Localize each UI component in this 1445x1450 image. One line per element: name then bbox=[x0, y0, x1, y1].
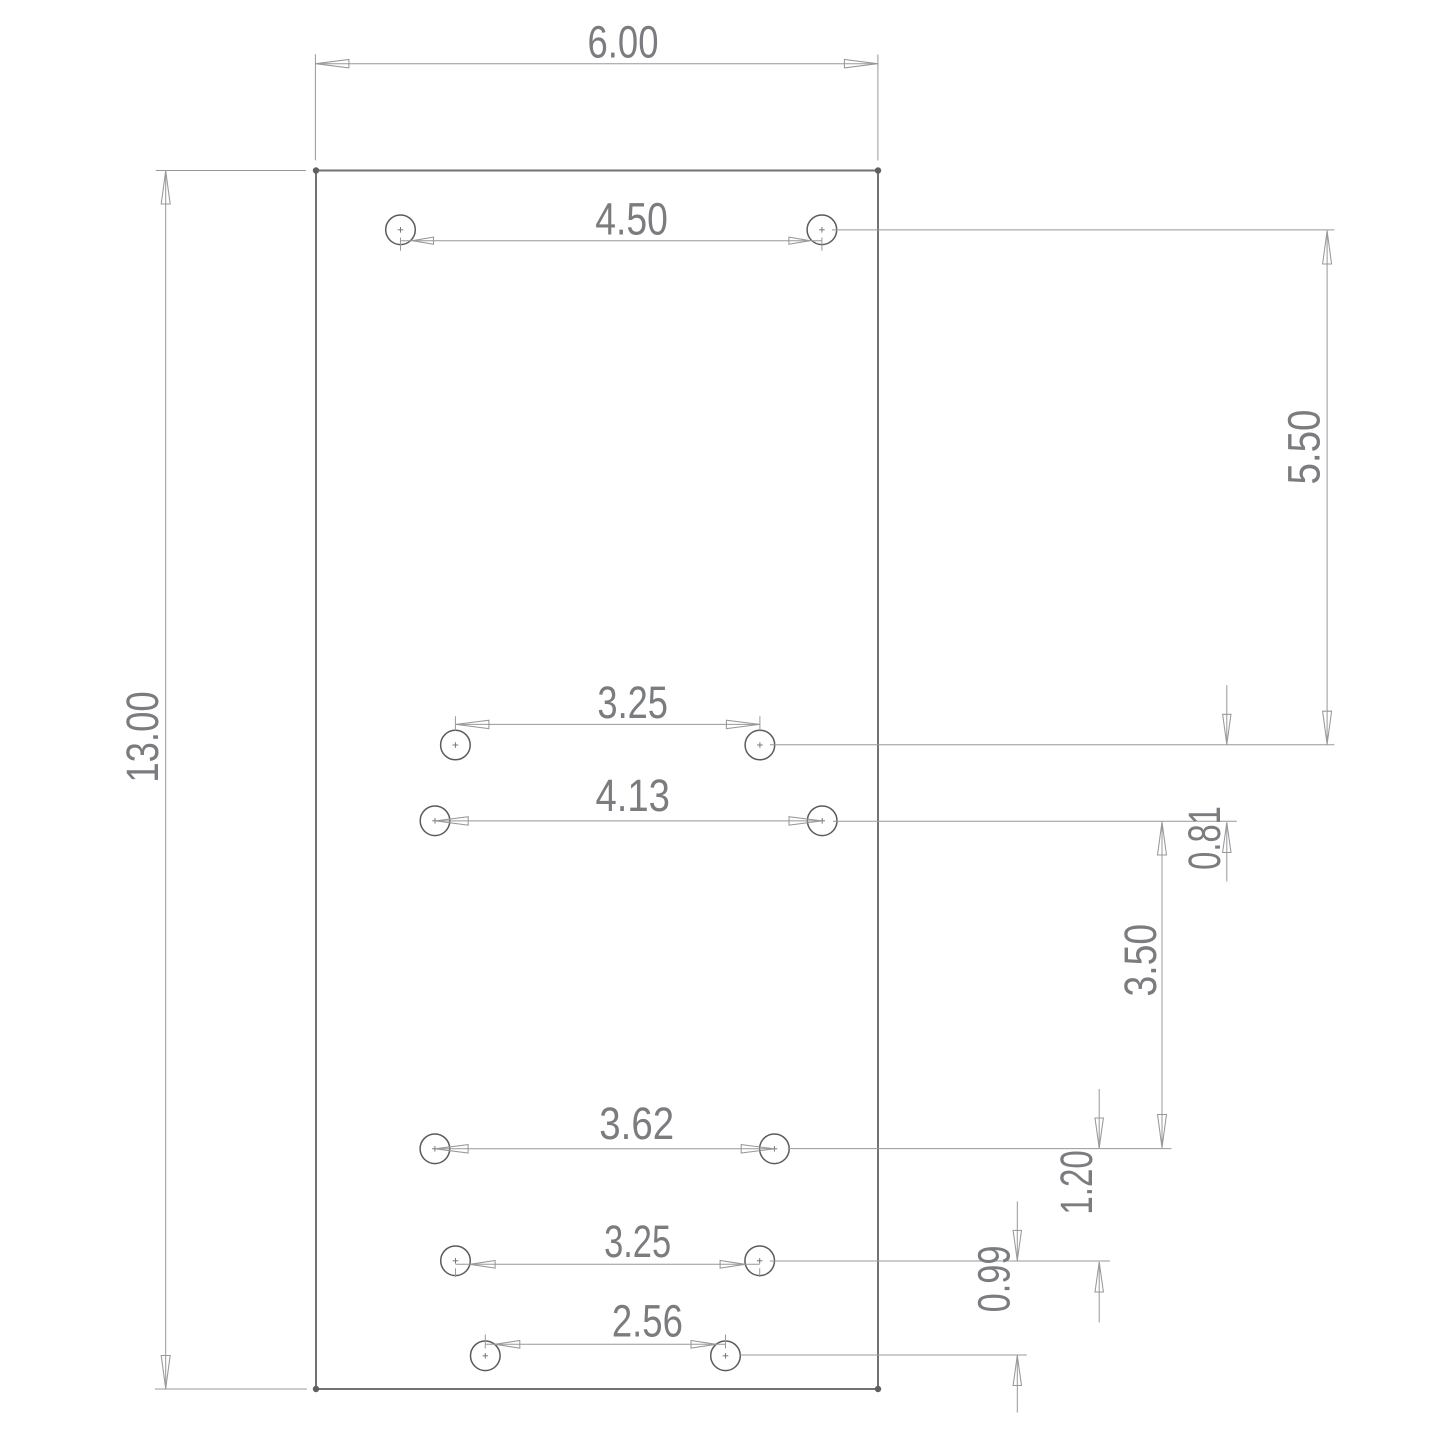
svg-text:1.20: 1.20 bbox=[1051, 1150, 1102, 1215]
svg-text:4.13: 4.13 bbox=[596, 770, 670, 821]
svg-text:2.56: 2.56 bbox=[612, 1295, 683, 1346]
svg-text:4.50: 4.50 bbox=[595, 194, 668, 245]
svg-text:0.99: 0.99 bbox=[969, 1246, 1020, 1313]
svg-text:5.50: 5.50 bbox=[1278, 410, 1329, 485]
svg-text:3.25: 3.25 bbox=[597, 677, 668, 728]
svg-text:13.00: 13.00 bbox=[117, 691, 168, 782]
svg-text:3.62: 3.62 bbox=[599, 1098, 674, 1149]
svg-text:3.50: 3.50 bbox=[1115, 924, 1166, 997]
svg-text:0.81: 0.81 bbox=[1179, 806, 1230, 870]
svg-text:3.25: 3.25 bbox=[604, 1216, 671, 1267]
svg-text:6.00: 6.00 bbox=[588, 17, 659, 68]
